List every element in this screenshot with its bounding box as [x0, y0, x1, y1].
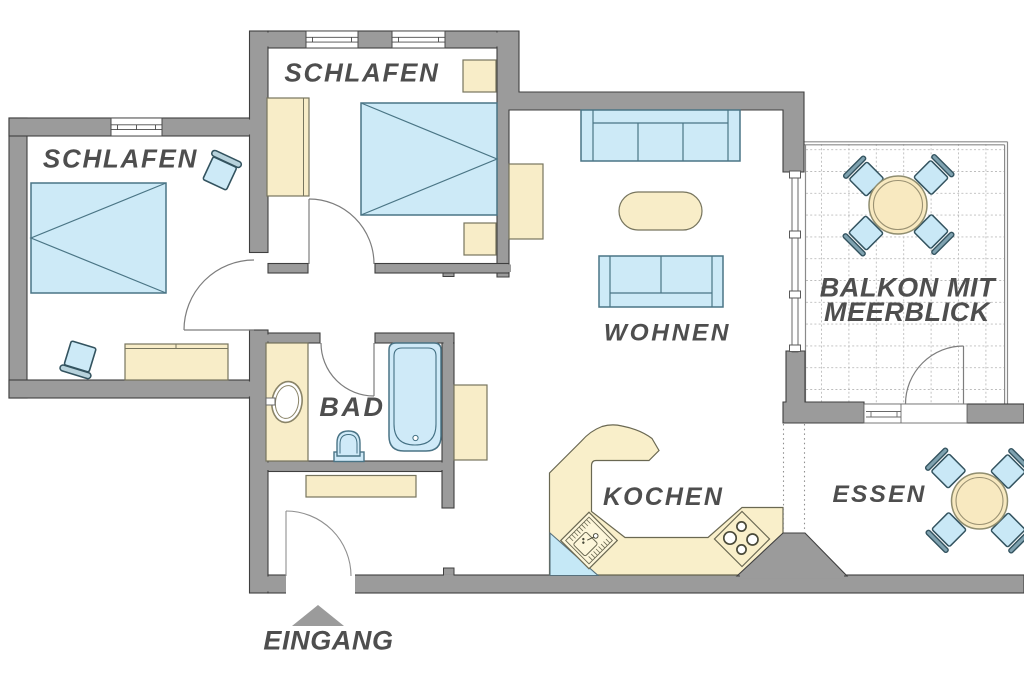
svg-text:SCHLAFEN: SCHLAFEN	[43, 143, 198, 173]
svg-text:KOCHEN: KOCHEN	[603, 483, 724, 511]
svg-text:WOHNEN: WOHNEN	[604, 320, 731, 347]
svg-text:SCHLAFEN: SCHLAFEN	[284, 57, 439, 87]
svg-text:MEERBLICK: MEERBLICK	[824, 297, 992, 327]
svg-text:EINGANG: EINGANG	[263, 626, 393, 656]
svg-text:BAD: BAD	[319, 392, 385, 422]
svg-text:ESSEN: ESSEN	[832, 481, 926, 508]
